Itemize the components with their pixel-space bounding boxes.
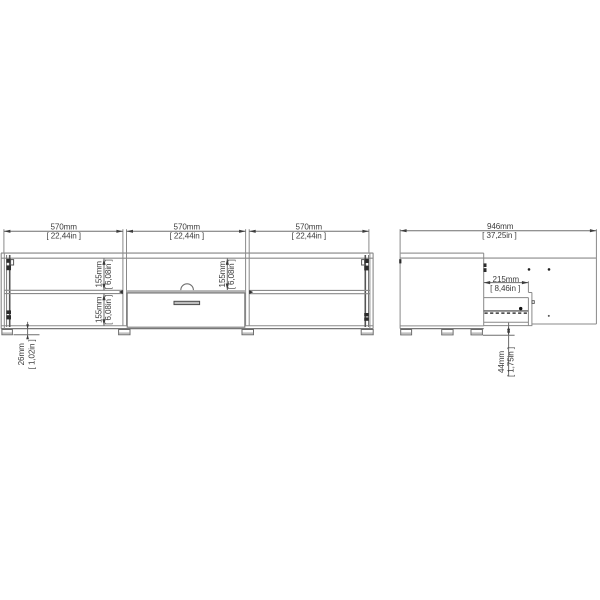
svg-text:215mm: 215mm <box>493 275 520 284</box>
svg-text:[ 6,08in ]: [ 6,08in ] <box>104 259 113 289</box>
svg-text:[ 37,25in ]: [ 37,25in ] <box>482 231 516 240</box>
svg-text:155mm: 155mm <box>95 296 104 323</box>
svg-text:[ 22,44in ]: [ 22,44in ] <box>170 232 204 241</box>
svg-text:[ 22,44in ]: [ 22,44in ] <box>292 232 326 241</box>
svg-text:[ 6,08in ]: [ 6,08in ] <box>104 295 113 325</box>
svg-text:[ 1,02in ]: [ 1,02in ] <box>27 339 36 369</box>
svg-text:[ 6,08in ]: [ 6,08in ] <box>227 259 236 289</box>
svg-text:570mm: 570mm <box>296 223 323 232</box>
svg-text:26mm: 26mm <box>17 343 26 365</box>
svg-text:946mm: 946mm <box>487 222 514 231</box>
svg-text:155mm: 155mm <box>95 261 104 288</box>
svg-text:155mm: 155mm <box>218 261 227 288</box>
svg-text:[ 1,75in ]: [ 1,75in ] <box>506 347 515 377</box>
svg-text:[ 8,46in ]: [ 8,46in ] <box>490 284 520 293</box>
svg-text:570mm: 570mm <box>50 223 77 232</box>
svg-text:570mm: 570mm <box>174 223 201 232</box>
svg-text:44mm: 44mm <box>497 351 506 373</box>
svg-text:[ 22,44in ]: [ 22,44in ] <box>46 232 80 241</box>
